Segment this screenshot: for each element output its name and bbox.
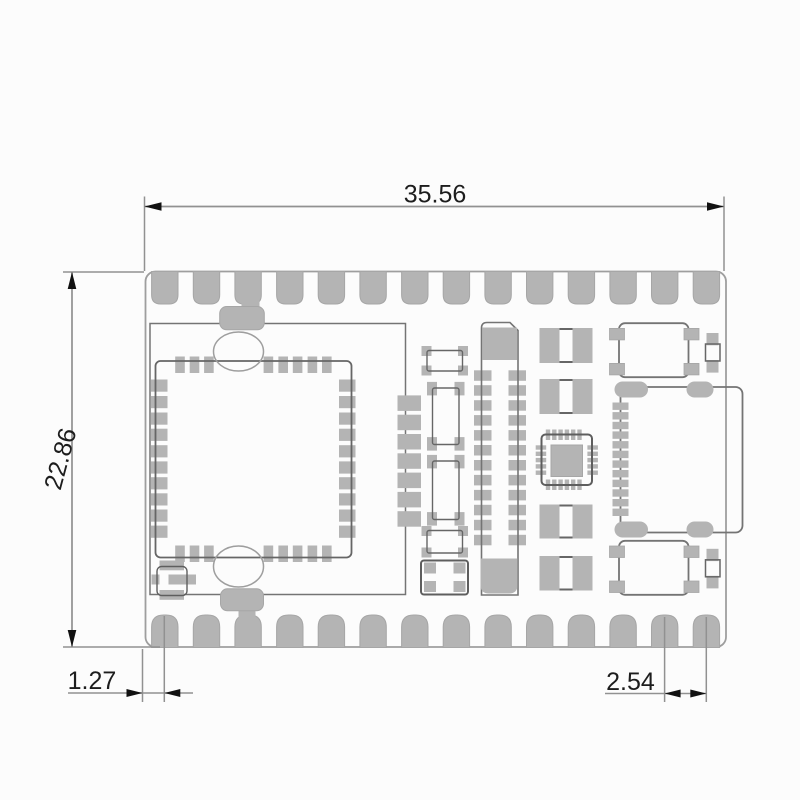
svg-text:1.27: 1.27 bbox=[68, 667, 117, 695]
svg-text:2.54: 2.54 bbox=[606, 668, 655, 696]
svg-text:35.56: 35.56 bbox=[404, 181, 467, 209]
